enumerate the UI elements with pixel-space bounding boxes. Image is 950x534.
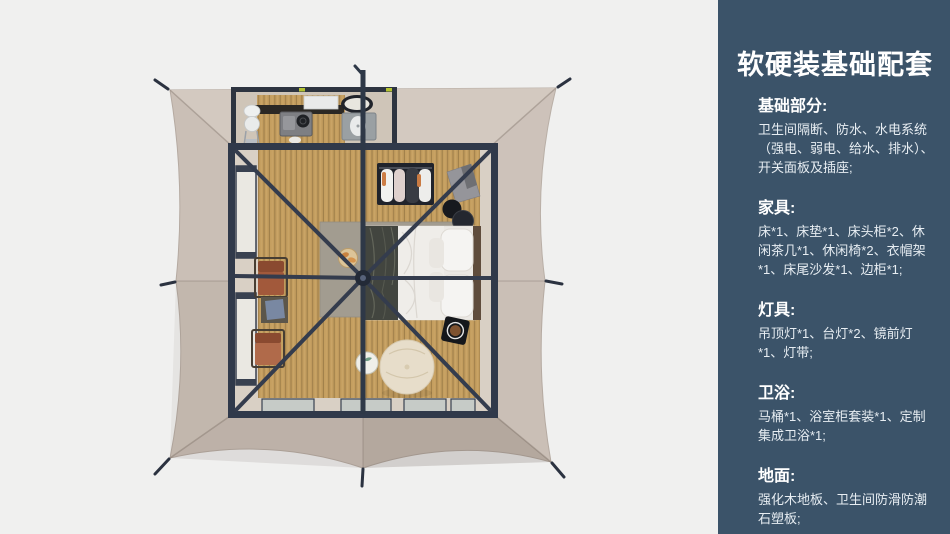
window-bottom-sill [236,379,256,385]
garment-dark [406,168,419,203]
section-bathroom-body: 马桶*1、浴室柜套装*1、定制集成卫浴*1; [758,407,936,445]
shower-drain [357,125,360,128]
tray-table [441,316,471,346]
bathroom [231,87,397,148]
section-bathroom: 卫浴: 马桶*1、浴室柜套装*1、定制集成卫浴*1; [758,383,936,445]
section-furniture-body: 床*1、床垫*1、床头柜*2、休闲茶几*1、休闲椅*2、衣帽架*1、床尾沙发*1… [758,222,936,279]
frame-accent-left [299,88,305,92]
shower [341,95,376,140]
section-furniture: 家具: 床*1、床垫*1、床头柜*2、休闲茶几*1、休闲椅*2、衣帽架*1、床尾… [758,198,936,279]
glass-door-3 [404,399,446,412]
side-tray-top [356,352,378,374]
section-basics-body: 卫生间隔断、防水、水电系统（强电、弱电、给水、排水）、开关面板及插座; [758,120,936,177]
chair1-backrest [258,261,284,272]
slide: 软硬装基础配套 基础部分: 卫生间隔断、防水、水电系统（强电、弱电、给水、排水）… [0,0,950,534]
section-flooring-body: 强化木地板、卫生间防滑防潮石塑板; [758,490,936,528]
washer-top [283,116,295,130]
glass-door-4 [451,399,475,412]
section-lighting-heading: 灯具: [758,300,936,321]
section-lighting: 灯具: 吊顶灯*1、台灯*2、镜前灯*1、灯带; [758,300,936,362]
bed [363,226,481,320]
stake-top-left [155,80,168,89]
tea-table-glass [265,299,285,320]
window-top-sill [236,252,256,258]
headboard [473,226,481,320]
toilet [244,105,260,147]
glass-door-2 [341,399,391,412]
window-bottom-cap [236,293,256,299]
section-basics-heading: 基础部分: [758,96,936,117]
garment-blush [394,169,405,202]
panel-title: 软硬装基础配套 [737,48,940,82]
chair2-seat [255,343,281,365]
scarf-orange-1 [382,172,386,186]
window-top [236,166,256,258]
tea-table [261,297,288,323]
section-basics: 基础部分: 卫生间隔断、防水、水电系统（强电、弱电、给水、排水）、开关面板及插座… [758,96,936,177]
section-flooring: 地面: 强化木地板、卫生间防滑防潮石塑板; [758,466,936,528]
stake-top-right [558,79,570,87]
section-flooring-heading: 地面: [758,466,936,487]
pouf-button [405,365,410,370]
pillow-bottom [441,275,473,317]
frame-accent-right [386,88,392,92]
section-furniture-heading: 家具: [758,198,936,219]
glass-doors [262,399,475,412]
tent-render [0,0,718,534]
mirror-glass [345,98,370,110]
scarf-orange-2 [417,174,421,187]
toilet-bowl [245,117,260,132]
stake-bottom-right [552,463,564,477]
frame-hub-cap [360,275,366,281]
side-tray-table [356,352,378,374]
cushion-top [429,238,444,268]
pillow-top [441,229,473,271]
washer-door [297,115,310,128]
section-bathroom-heading: 卫浴: [758,383,936,404]
info-panel: 软硬装基础配套 基础部分: 卫生间隔断、防水、水电系统（强电、弱电、给水、排水）… [718,0,950,534]
wardrobe-rack [377,163,434,205]
stake-bottom-left [155,459,169,474]
washer [280,112,312,136]
stake-left [161,282,175,285]
spoke-left [235,276,363,278]
section-lighting-body: 吊顶灯*1、台灯*2、镜前灯*1、灯带; [758,324,936,362]
bath-mat [289,137,301,144]
stake-bottom-mid [362,469,363,486]
stake-right [546,281,562,284]
lounge-chair-2 [252,330,284,367]
toilet-tank [244,105,260,117]
bathroom-sink-counter [304,96,338,109]
chair2-backrest [255,333,281,343]
glass-door-1 [262,399,314,412]
panel-sections: 基础部分: 卫生间隔断、防水、水电系统（强电、弱电、给水、排水）、开关面板及插座… [758,96,936,528]
